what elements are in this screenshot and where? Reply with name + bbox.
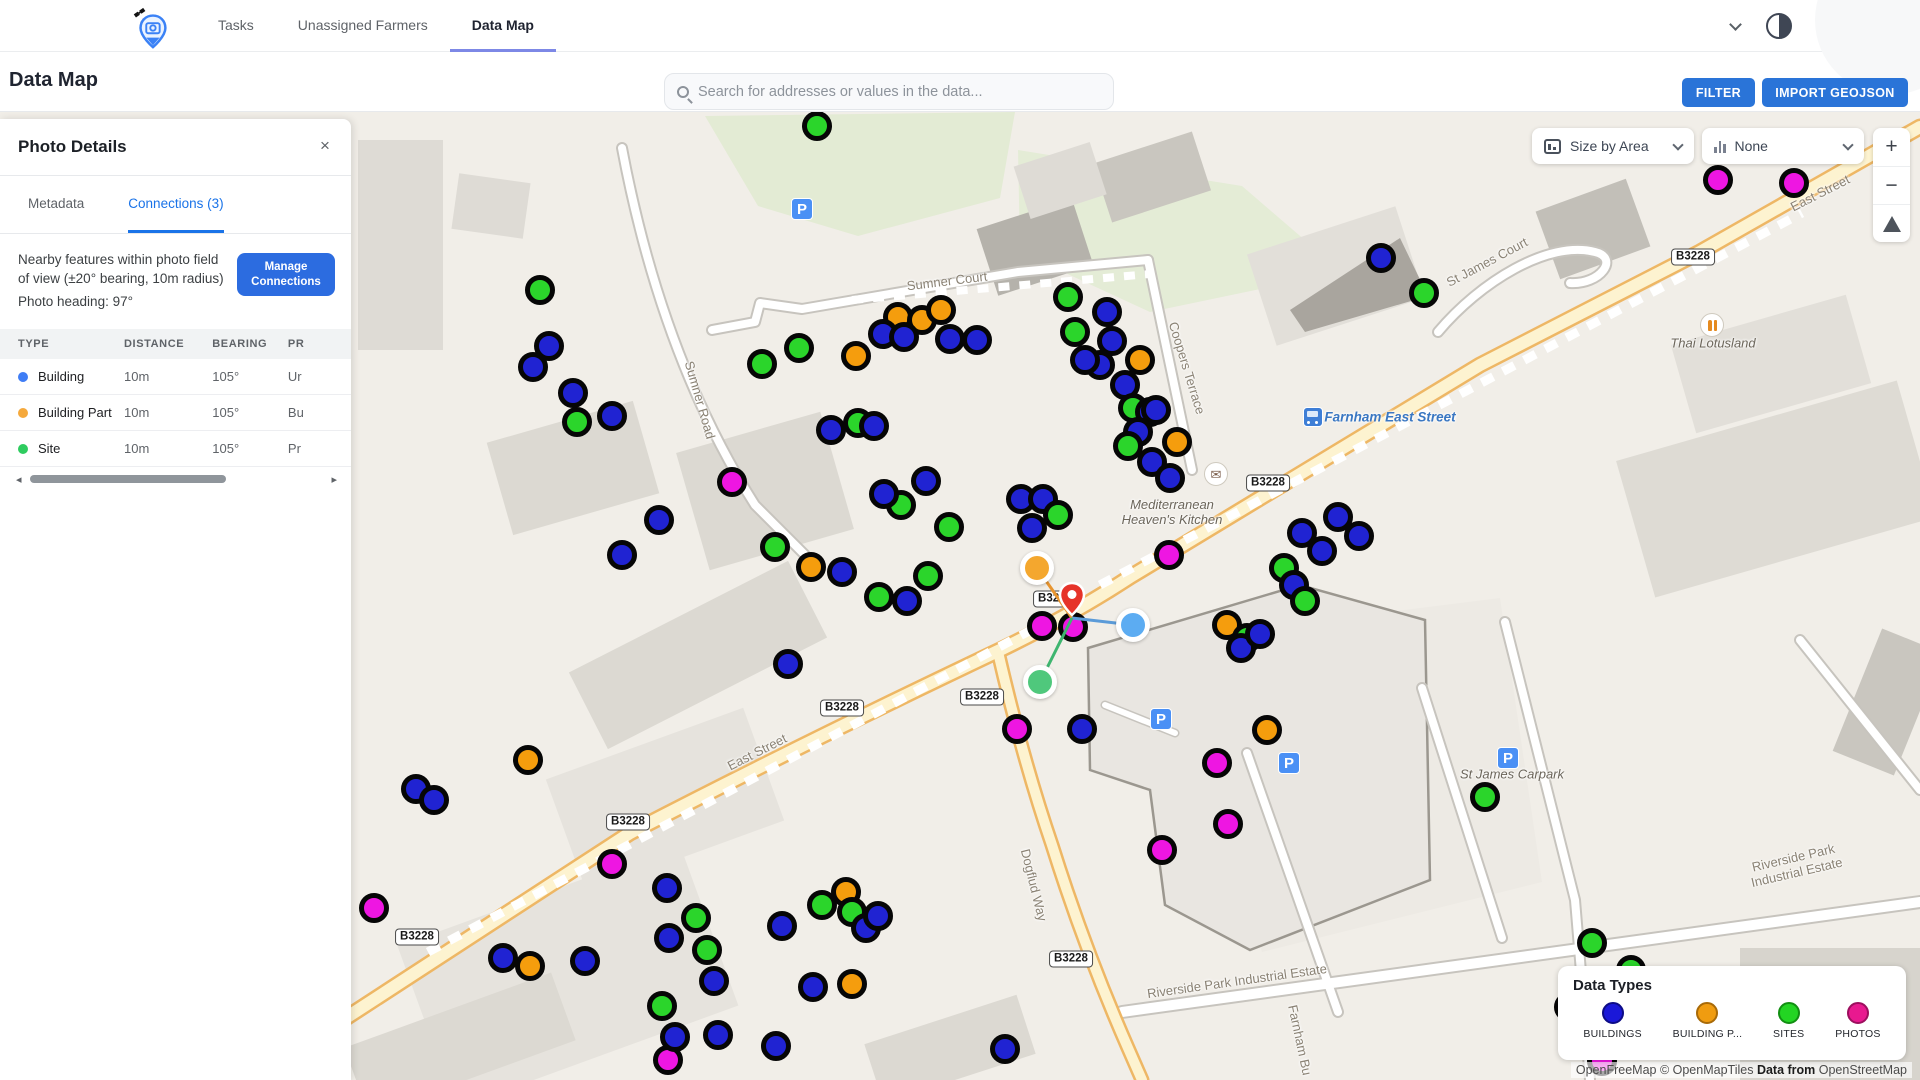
north-arrow-icon	[1883, 216, 1901, 232]
legend-item: BUILDINGS	[1583, 1002, 1641, 1040]
compass-button[interactable]	[1873, 204, 1910, 242]
photo-details-panel: Photo Details × Metadata Connections (3)…	[0, 119, 351, 1080]
attribution-text: OpenFreeMap © OpenMapTiles	[1576, 1063, 1757, 1077]
connections-table: TYPE DISTANCE BEARING PR Building10m105°…	[0, 329, 351, 467]
main-nav-tabs: Tasks Unassigned Farmers Data Map	[196, 0, 556, 52]
map-marker-m[interactable]	[1202, 748, 1232, 778]
table-row[interactable]: Building Part10m105°Bu	[0, 395, 351, 431]
map-marker-b[interactable]	[1307, 536, 1337, 566]
panel-header: Photo Details ×	[0, 119, 351, 176]
post-box-icon: ✉	[1204, 462, 1228, 486]
row-distance: 10m	[124, 395, 212, 431]
dark-mode-toggle-icon[interactable]	[1766, 13, 1792, 39]
col-distance: DISTANCE	[124, 329, 212, 359]
road-ref-badge: B3228	[606, 814, 650, 831]
row-type: Building	[0, 359, 124, 395]
map-marker-m[interactable]	[1154, 540, 1184, 570]
map-marker-b[interactable]	[644, 505, 674, 535]
legend-item: BUILDING P...	[1673, 1002, 1743, 1040]
parking-icon: P	[1150, 708, 1172, 730]
row-type: Building Part	[0, 395, 124, 431]
map-marker-b[interactable]	[935, 324, 965, 354]
map-marker-g[interactable]	[647, 991, 677, 1021]
map-marker-b[interactable]	[911, 466, 941, 496]
map-marker-b[interactable]	[654, 923, 684, 953]
type-dot-icon	[18, 444, 28, 454]
map-marker-g[interactable]	[692, 935, 722, 965]
zoom-out-button[interactable]: −	[1873, 166, 1910, 204]
map-marker-o[interactable]	[513, 745, 543, 775]
map-marker-m[interactable]	[1213, 809, 1243, 839]
map-marker-m[interactable]	[359, 893, 389, 923]
attribution-text: OpenStreetMap	[1815, 1063, 1907, 1077]
photo-heading-text: Photo heading: 97°	[18, 294, 333, 309]
map-marker-b[interactable]	[869, 479, 899, 509]
map-marker-b[interactable]	[827, 557, 857, 587]
road-ref-badge: B3228	[395, 929, 439, 946]
map-marker-b[interactable]	[816, 415, 846, 445]
table-row[interactable]: Building10m105°Ur	[0, 359, 351, 395]
map-marker-g[interactable]	[1290, 586, 1320, 616]
map-marker-o[interactable]	[796, 552, 826, 582]
map-marker-b[interactable]	[570, 946, 600, 976]
scroll-right-icon[interactable]: ▸	[331, 473, 337, 486]
map-marker-m[interactable]	[597, 849, 627, 879]
panel-title: Photo Details	[18, 137, 127, 157]
row-distance: 10m	[124, 431, 212, 467]
map-marker-b[interactable]	[558, 378, 588, 408]
parking-icon: P	[791, 198, 813, 220]
selected-photo-pin[interactable]	[1058, 581, 1086, 622]
size-by-area-icon	[1544, 139, 1561, 154]
legend-label: SITES	[1773, 1028, 1804, 1040]
legend-dot	[1778, 1002, 1800, 1024]
manage-connections-button[interactable]: Manage Connections	[237, 253, 335, 296]
app-logo-icon[interactable]	[130, 6, 174, 48]
map-marker-b[interactable]	[488, 943, 518, 973]
map-marker-m[interactable]	[1147, 835, 1177, 865]
map-marker-g[interactable]	[747, 349, 777, 379]
row-bearing: 105°	[212, 431, 288, 467]
map-marker-b[interactable]	[518, 352, 548, 382]
legend-label: PHOTOS	[1835, 1028, 1880, 1040]
map-marker-g[interactable]	[1043, 500, 1073, 530]
map-marker-g[interactable]	[802, 112, 832, 141]
map-marker-b[interactable]	[863, 901, 893, 931]
map-marker-b[interactable]	[597, 401, 627, 431]
map-marker-b[interactable]	[773, 649, 803, 679]
chevron-down-icon	[1672, 139, 1683, 150]
map-marker-o[interactable]	[926, 295, 956, 325]
map-marker-b[interactable]	[798, 972, 828, 1002]
color-by-dropdown[interactable]: None	[1702, 128, 1864, 164]
map-marker-b[interactable]	[1070, 345, 1100, 375]
map-marker-g[interactable]	[1113, 431, 1143, 461]
scrollbar-thumb[interactable]	[30, 475, 226, 483]
map-marker-g[interactable]	[1409, 278, 1439, 308]
zoom-controls: + −	[1873, 128, 1910, 242]
table-horizontal-scrollbar[interactable]: ◂ ▸	[0, 471, 351, 489]
attribution-text-bold: Data from	[1757, 1063, 1815, 1077]
top-navbar: Tasks Unassigned Farmers Data Map	[0, 0, 1920, 52]
map-marker-g[interactable]	[934, 512, 964, 542]
color-by-value: None	[1735, 138, 1836, 154]
tab-metadata[interactable]: Metadata	[28, 176, 84, 233]
parking-icon: P	[1278, 752, 1300, 774]
road-ref-badge: B3228	[820, 700, 864, 717]
search-input[interactable]	[698, 84, 1088, 100]
import-geojson-button[interactable]: IMPORT GEOJSON	[1762, 78, 1908, 107]
connected-feature-marker[interactable]	[1020, 551, 1054, 585]
table-row[interactable]: Site10m105°Pr	[0, 431, 351, 467]
panel-tabs: Metadata Connections (3)	[0, 176, 351, 234]
map-marker-g[interactable]	[784, 333, 814, 363]
map-marker-g[interactable]	[1577, 928, 1607, 958]
scroll-left-icon[interactable]: ◂	[16, 473, 22, 486]
size-by-value: Size by Area	[1570, 138, 1665, 154]
map-marker-g[interactable]	[864, 582, 894, 612]
map-marker-o[interactable]	[841, 341, 871, 371]
road-ref-badge: B3228	[1671, 249, 1715, 266]
legend-dot	[1696, 1002, 1718, 1024]
map-marker-b[interactable]	[1245, 619, 1275, 649]
close-icon[interactable]: ×	[312, 133, 338, 159]
size-by-dropdown[interactable]: Size by Area	[1532, 128, 1694, 164]
search-icon	[677, 86, 689, 98]
data-types-legend: Data Types BUILDINGSBUILDING P...SITESPH…	[1558, 966, 1906, 1060]
map-marker-o[interactable]	[515, 951, 545, 981]
map-marker-o[interactable]	[1162, 427, 1192, 457]
nav-tab-unassigned-farmers[interactable]: Unassigned Farmers	[276, 0, 450, 52]
restaurant-icon	[1700, 313, 1724, 337]
map-search[interactable]	[664, 73, 1114, 110]
table-header-row: TYPE DISTANCE BEARING PR	[0, 329, 351, 359]
page-title: Data Map	[9, 69, 98, 92]
map-marker-b[interactable]	[652, 873, 682, 903]
map-marker-o[interactable]	[1252, 715, 1282, 745]
map-marker-b[interactable]	[990, 1034, 1020, 1064]
map-marker-b[interactable]	[1344, 521, 1374, 551]
legend-item: SITES	[1773, 1002, 1804, 1040]
row-bearing: 105°	[212, 359, 288, 395]
map-marker-g[interactable]	[525, 275, 555, 305]
map-marker-b[interactable]	[889, 322, 919, 352]
connected-feature-marker[interactable]	[1023, 665, 1057, 699]
row-type: Site	[0, 431, 124, 467]
map-attribution: OpenFreeMap © OpenMapTiles Data from Ope…	[1571, 1062, 1912, 1078]
parking-icon: P	[1497, 747, 1519, 769]
map-marker-b[interactable]	[1092, 297, 1122, 327]
map-marker-g[interactable]	[760, 532, 790, 562]
col-type: TYPE	[0, 329, 124, 359]
map-marker-b[interactable]	[1017, 513, 1047, 543]
map-marker-b[interactable]	[1155, 463, 1185, 493]
legend-label: BUILDING P...	[1673, 1028, 1743, 1040]
row-distance: 10m	[124, 359, 212, 395]
map-marker-g[interactable]	[1060, 317, 1090, 347]
road-ref-badge: B3228	[1246, 475, 1290, 492]
road-ref-badge: B3228	[960, 689, 1004, 706]
map-marker-o[interactable]	[837, 969, 867, 999]
row-bearing: 105°	[212, 395, 288, 431]
col-bearing: BEARING	[212, 329, 288, 359]
legend-dot	[1602, 1002, 1624, 1024]
map-marker-b[interactable]	[419, 785, 449, 815]
legend-dot	[1847, 1002, 1869, 1024]
map-marker-g[interactable]	[681, 903, 711, 933]
account-chevron-down-icon[interactable]	[1729, 18, 1742, 31]
type-dot-icon	[18, 408, 28, 418]
map-marker-m[interactable]	[1027, 611, 1057, 641]
tab-connections[interactable]: Connections (3)	[128, 176, 223, 233]
nav-tab-tasks[interactable]: Tasks	[196, 0, 276, 52]
row-preview: Pr	[288, 431, 351, 467]
connected-feature-marker[interactable]	[1116, 608, 1150, 642]
map-marker-m[interactable]	[1002, 714, 1032, 744]
map-marker-m[interactable]	[1703, 165, 1733, 195]
map-marker-b[interactable]	[892, 586, 922, 616]
bus-stop-icon	[1303, 407, 1323, 427]
description-text: Nearby features within photo field of vi…	[18, 250, 233, 288]
map-marker-b[interactable]	[1067, 714, 1097, 744]
map-marker-b[interactable]	[761, 1031, 791, 1061]
map-marker-b[interactable]	[703, 1020, 733, 1050]
map-marker-b[interactable]	[660, 1022, 690, 1052]
col-preview: PR	[288, 329, 351, 359]
nav-tab-data-map[interactable]: Data Map	[450, 0, 556, 52]
chevron-down-icon	[1842, 139, 1853, 150]
filter-button[interactable]: FILTER	[1682, 78, 1755, 107]
connections-description: Nearby features within photo field of vi…	[0, 234, 351, 321]
map-marker-b[interactable]	[767, 911, 797, 941]
map-marker-m[interactable]	[1779, 168, 1809, 198]
map-marker-b[interactable]	[1366, 243, 1396, 273]
map-marker-g[interactable]	[1053, 282, 1083, 312]
zoom-in-button[interactable]: +	[1873, 128, 1910, 166]
map-marker-b[interactable]	[699, 966, 729, 996]
map-marker-b[interactable]	[962, 325, 992, 355]
map-marker-g[interactable]	[1470, 782, 1500, 812]
legend-title: Data Types	[1573, 977, 1652, 994]
legend-item: PHOTOS	[1835, 1002, 1880, 1040]
map-marker-g[interactable]	[562, 407, 592, 437]
type-dot-icon	[18, 372, 28, 382]
legend-label: BUILDINGS	[1583, 1028, 1641, 1040]
road-ref-badge: B3228	[1049, 951, 1093, 968]
bar-chart-icon	[1714, 139, 1726, 153]
map-marker-m[interactable]	[717, 467, 747, 497]
row-preview: Ur	[288, 359, 351, 395]
map-marker-g[interactable]	[913, 561, 943, 591]
map-marker-b[interactable]	[859, 411, 889, 441]
map-marker-b[interactable]	[607, 540, 637, 570]
row-preview: Bu	[288, 395, 351, 431]
